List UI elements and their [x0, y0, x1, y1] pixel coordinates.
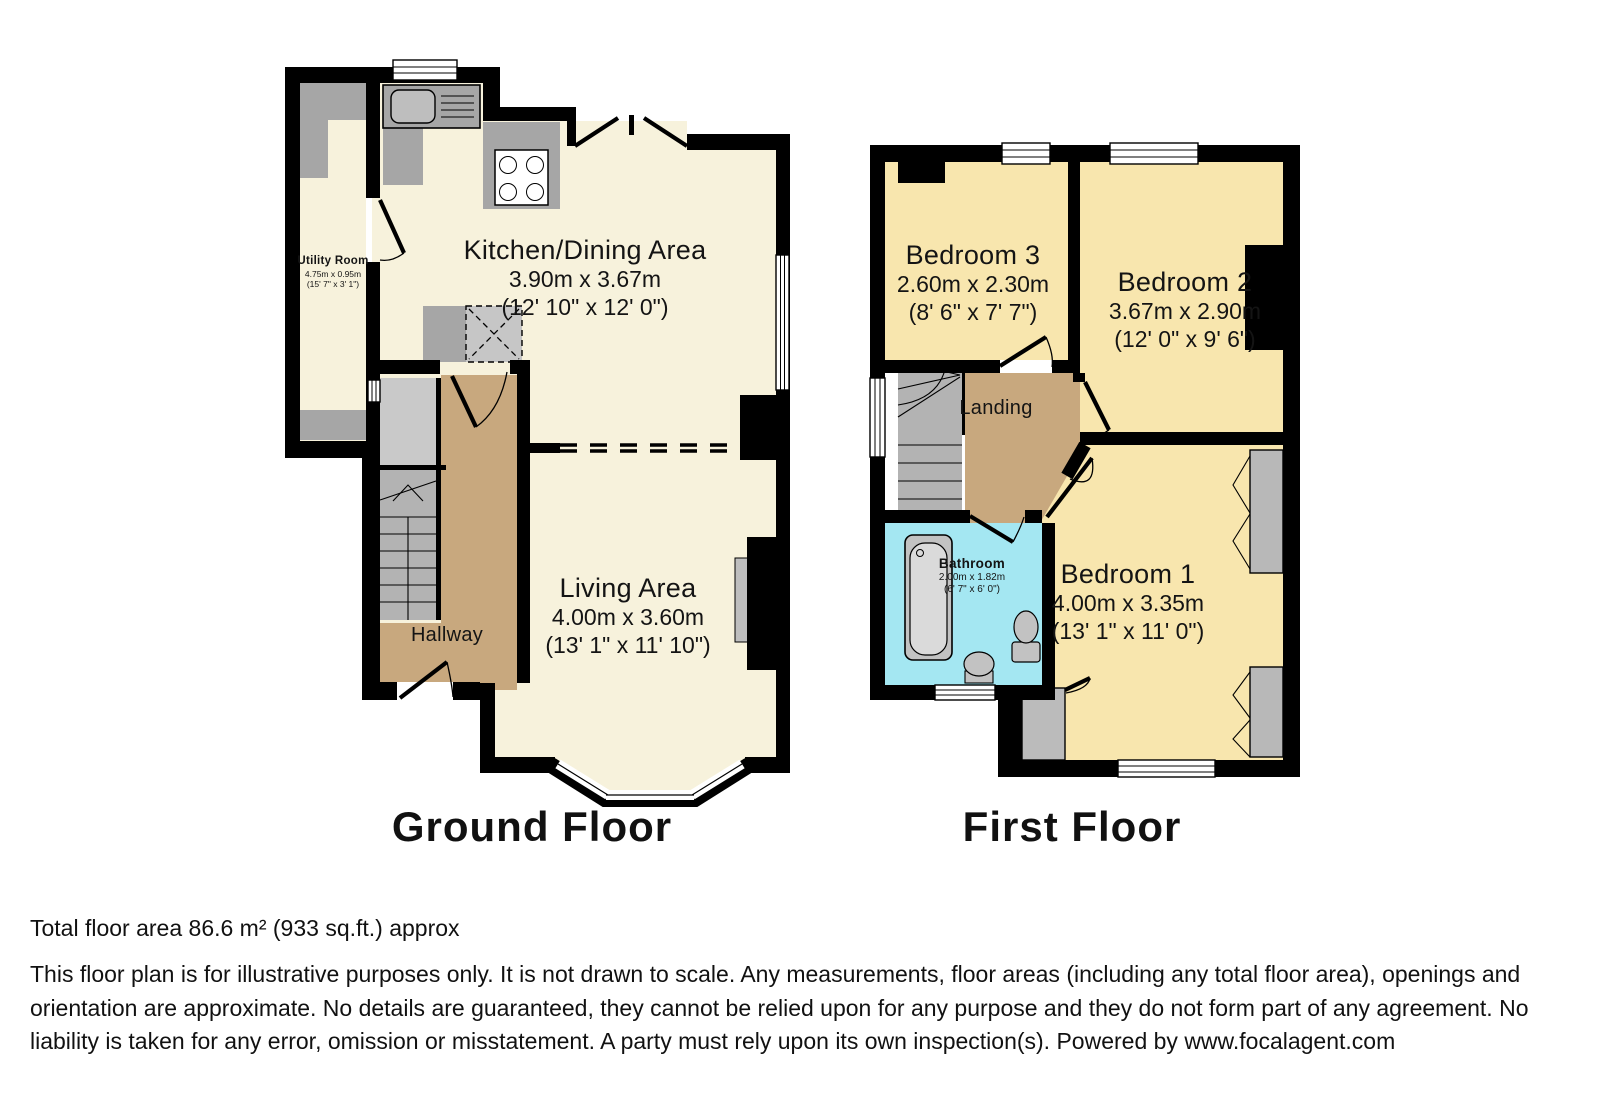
landing-name: Landing [959, 396, 1032, 420]
living-area-metric: 4.00m x 3.60m [545, 605, 710, 633]
hob-fixture [495, 150, 548, 205]
bedroom2-name: Bedroom 2 [1109, 266, 1261, 298]
living-area-imperial: (13' 1" x 11' 10") [545, 632, 710, 660]
utility-room-name: Utility Room [297, 255, 368, 269]
kitchen-metric: 3.90m x 3.67m [464, 267, 707, 295]
utility-room-label: Utility Room 4.75m x 0.95m (15' 7" x 3' … [297, 255, 368, 289]
first-floor-title: First Floor [963, 803, 1182, 851]
bedroom2-metric: 3.67m x 2.90m [1109, 299, 1261, 327]
bedroom1-label: Bedroom 1 4.00m x 3.35m (13' 1" x 11' 0"… [1052, 558, 1205, 646]
kitchen-name: Kitchen/Dining Area [464, 234, 707, 266]
kitchen-imperial: (12' 10" x 12' 0") [464, 294, 707, 322]
understair-storage [380, 378, 436, 467]
utility-room-imperial: (15' 7" x 3' 1") [297, 279, 368, 289]
hall-small-window [368, 380, 380, 402]
ground-floor-title: Ground Floor [392, 803, 672, 851]
ground-floor-plan [275, 55, 800, 810]
bedroom1-window [1118, 760, 1215, 777]
bedroom2-imperial: (12' 0" x 9' 6") [1109, 326, 1261, 354]
hallway-name: Hallway [411, 623, 483, 647]
stairs-window [870, 378, 885, 457]
bedroom3-window [1002, 143, 1050, 164]
bathroom-imperial: (6' 7" x 6' 0") [939, 584, 1005, 596]
hallway-label: Hallway [411, 623, 483, 647]
first-floor-plan [862, 133, 1302, 783]
living-area-label: Living Area 4.00m x 3.60m (13' 1" x 11' … [545, 572, 710, 660]
dining-side-window [776, 255, 789, 390]
total-floor-area: Total floor area 86.6 m² (933 sq.ft.) ap… [30, 915, 460, 942]
bedroom2-label: Bedroom 2 3.67m x 2.90m (12' 0" x 9' 6") [1109, 266, 1261, 354]
bedroom3-label: Bedroom 3 2.60m x 2.30m (8' 6" x 7' 7") [897, 239, 1049, 327]
disclaimer-text: This floor plan is for illustrative purp… [30, 958, 1582, 1059]
utility-room-metric: 4.75m x 0.95m [297, 269, 368, 279]
kitchen-label: Kitchen/Dining Area 3.90m x 3.67m (12' 1… [464, 234, 707, 322]
bathroom-window [935, 685, 995, 700]
bedroom3-metric: 2.60m x 2.30m [897, 272, 1049, 300]
bathroom-label: Bathroom 2.00m x 1.82m (6' 7" x 6' 0") [939, 556, 1005, 596]
bedroom1-imperial: (13' 1" x 11' 0") [1052, 618, 1205, 646]
bedroom3-name: Bedroom 3 [897, 239, 1049, 271]
bathroom-metric: 2.00m x 1.82m [939, 572, 1005, 584]
basin-fixture [964, 652, 994, 683]
bedroom1-name: Bedroom 1 [1052, 558, 1205, 590]
bedroom2-window [1110, 143, 1198, 164]
bathroom-name: Bathroom [939, 556, 1005, 572]
bedroom1-metric: 4.00m x 3.35m [1052, 591, 1205, 619]
toilet-fixture [1012, 611, 1040, 662]
kitchen-window [393, 60, 457, 80]
bedroom3-imperial: (8' 6" x 7' 7") [897, 299, 1049, 327]
living-area-name: Living Area [545, 572, 710, 604]
landing-label: Landing [959, 396, 1032, 420]
bath-fixture [905, 535, 952, 660]
